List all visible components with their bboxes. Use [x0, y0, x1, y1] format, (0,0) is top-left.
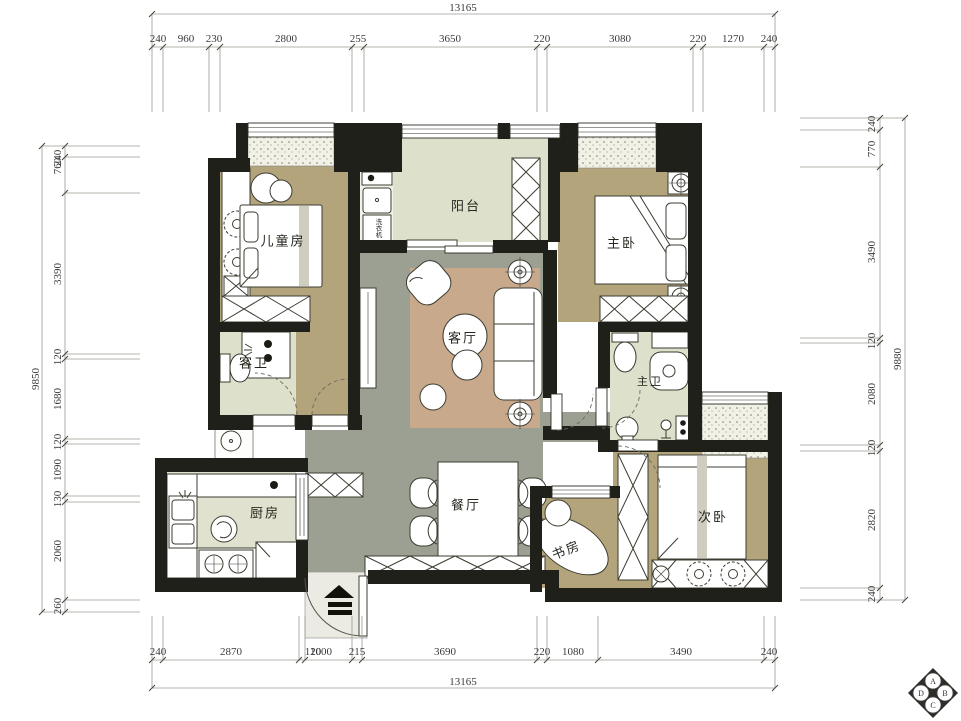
corridor-floor	[305, 430, 363, 572]
logo-letter-b: B	[942, 689, 947, 698]
dim-left-4: 1680	[52, 388, 64, 410]
dim-top-total: 13165	[449, 2, 477, 14]
floor-plan-drawing: A B C D	[0, 0, 961, 721]
dim-bottom-total: 13165	[449, 676, 477, 688]
floor-plan-page: A B C D 儿童房 阳台 主卧 客卫 客厅 主卫 厨房 餐厅 书房 次卧 洗…	[0, 0, 961, 721]
study-sliding-door	[552, 486, 610, 498]
dim-right-2: 3490	[866, 241, 878, 263]
room-label-children: 儿童房	[260, 231, 305, 250]
dim-left-9: 260	[52, 598, 64, 615]
fridge	[256, 542, 297, 578]
dim-right-4: 2080	[866, 383, 878, 405]
dim-bottom-3: 1000	[310, 646, 332, 658]
dim-left-5: 120	[52, 434, 64, 451]
dim-top-1: 960	[178, 33, 195, 45]
logo-letter-d: D	[918, 689, 924, 698]
alcove-window	[702, 392, 768, 404]
guestbath-door-leaf	[253, 415, 295, 426]
dim-bottom-5: 3690	[434, 646, 456, 658]
dim-left-2: 3390	[52, 263, 64, 285]
logo-badge: A B C D	[908, 668, 958, 718]
dim-left-7: 130	[52, 491, 64, 508]
dim-left-8: 2060	[52, 540, 64, 562]
entry-door-leaf	[359, 576, 367, 636]
kitchen-sliding-door	[296, 474, 308, 540]
dim-left-total: 9850	[30, 368, 42, 390]
dim-top-0: 240	[150, 33, 167, 45]
dim-right-1: 770	[866, 141, 878, 158]
dim-bottom-4: 215	[349, 646, 366, 658]
dim-right-3: 120	[866, 333, 878, 350]
master-door-leaf	[551, 394, 562, 430]
logo-letter-c: C	[930, 701, 935, 710]
balcony-window	[402, 125, 498, 138]
dim-right-0: 240	[866, 116, 878, 133]
children-window	[248, 123, 334, 137]
secondbr-wardrobe	[618, 454, 648, 580]
children-wardrobe	[222, 296, 310, 322]
children-window-hatch	[248, 137, 334, 166]
dim-top-6: 220	[534, 33, 551, 45]
dim-bottom-9: 240	[761, 646, 778, 658]
balcony-window2	[510, 125, 560, 138]
dim-top-10: 240	[761, 33, 778, 45]
dim-top-8: 220	[690, 33, 707, 45]
dim-top-7: 3080	[609, 33, 631, 45]
dim-right-5: 120	[866, 440, 878, 457]
dim-right-6: 2820	[866, 509, 878, 531]
secondbr-door-leaf	[618, 440, 658, 451]
logo-letter-a: A	[930, 677, 936, 686]
dim-top-2: 230	[206, 33, 223, 45]
dim-right-7: 240	[866, 586, 878, 603]
dim-bottom-0: 240	[150, 646, 167, 658]
sofa	[494, 288, 542, 400]
room-label-masterbath: 主卫	[637, 373, 663, 389]
dim-left-3: 120	[52, 349, 64, 366]
room-label-master: 主卧	[607, 233, 637, 252]
dim-left-6: 1090	[52, 459, 64, 481]
room-label-secondbr: 次卧	[698, 507, 728, 526]
shoe-cabinet	[307, 473, 363, 497]
closet-door-leaf	[312, 415, 348, 426]
room-label-balcony: 阳台	[451, 196, 481, 215]
dim-top-9: 1270	[722, 33, 744, 45]
dim-top-4: 255	[350, 33, 367, 45]
dim-bottom-7: 1080	[562, 646, 584, 658]
label-washing-machine: 洗衣机	[372, 218, 382, 238]
dim-top-5: 3650	[439, 33, 461, 45]
room-label-dining: 餐厅	[451, 495, 481, 514]
dim-bottom-1: 2870	[220, 646, 242, 658]
dim-left-1: 760	[52, 158, 64, 175]
dim-top-3: 2800	[275, 33, 297, 45]
dim-right-total: 9880	[892, 348, 904, 370]
dim-bottom-8: 3490	[670, 646, 692, 658]
room-label-guestbath: 客卫	[239, 353, 269, 372]
master-window	[578, 123, 656, 137]
master-window-hatch	[578, 137, 656, 168]
room-label-kitchen: 厨房	[250, 503, 280, 522]
dim-bottom-6: 220	[534, 646, 551, 658]
masterbath-door-leaf	[596, 388, 607, 426]
room-label-living: 客厅	[448, 328, 478, 347]
